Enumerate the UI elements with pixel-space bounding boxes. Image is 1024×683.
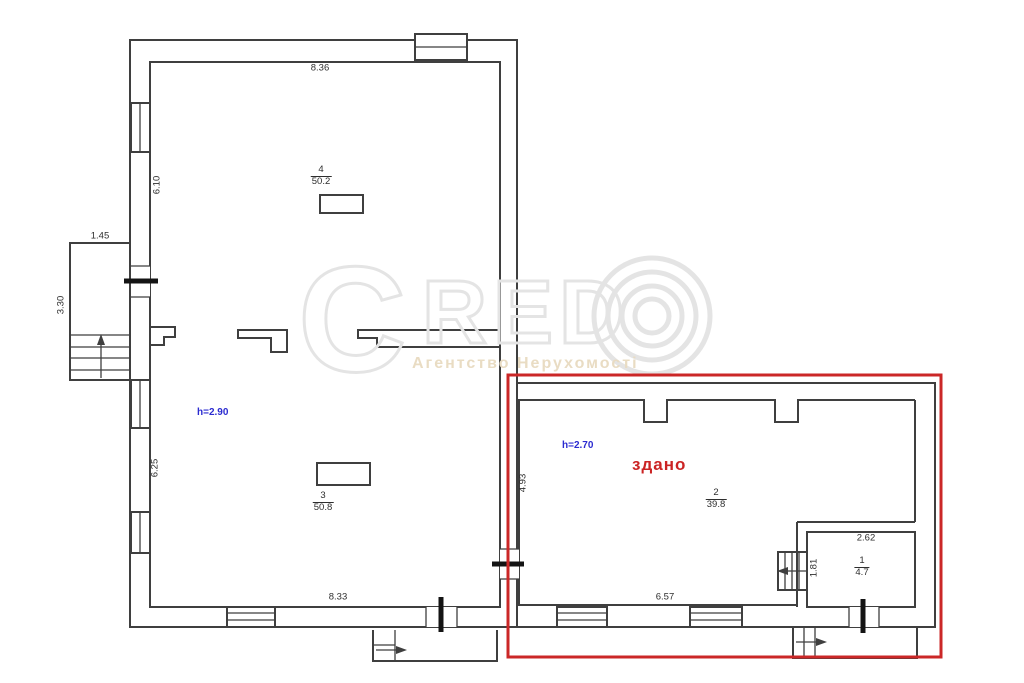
door-bottom-left-building [426, 597, 457, 632]
watermark-text: RED [422, 268, 630, 358]
room3-label: 3 50.8 [313, 491, 334, 514]
watermark-subtitle: Агентство Нерухомості [412, 356, 639, 372]
dim-left-upper-height: 6.10 [152, 176, 163, 195]
window-left-wall-3 [131, 512, 150, 553]
window-top-wall [415, 34, 467, 60]
dim-annex-bottom-width: 6.57 [656, 592, 675, 603]
room2-label: 2 39.8 [706, 488, 727, 511]
window-bottom-left-building [227, 607, 275, 627]
dim-top-width: 8.36 [311, 63, 330, 74]
status-leased-text: здано [632, 455, 686, 475]
dim-stair-width: 1.45 [91, 231, 110, 242]
room4-label: 4 50.2 [311, 165, 332, 188]
window-left-wall-1 [131, 103, 150, 152]
watermark-letter-c: C [298, 244, 406, 394]
room4-area: 50.2 [311, 177, 332, 188]
window-left-wall-2 [131, 380, 150, 428]
porch-stairs-bottom-left [373, 630, 497, 661]
floor-plan-canvas: C RED Агентство Нерухомості [0, 0, 1024, 683]
room2-area: 39.8 [706, 500, 727, 511]
dim-stair-height: 3.30 [56, 296, 67, 315]
window-annex-bottom-1 [557, 607, 607, 627]
room3-area: 50.8 [313, 503, 334, 514]
dim-room1-width: 2.62 [857, 533, 876, 544]
dim-bottom-width-left: 8.33 [329, 592, 348, 603]
room1-label: 1 4.7 [854, 556, 869, 579]
window-annex-bottom-2 [690, 607, 742, 627]
dim-annex-left-height: 4.93 [518, 474, 529, 493]
fixture-room3 [317, 463, 370, 485]
room1-area: 4.7 [854, 568, 869, 579]
height-label-room3: h=2.90 [197, 407, 228, 418]
exterior-staircase-left [70, 243, 130, 380]
interior-stairs-room1 [777, 552, 807, 590]
height-label-room2: h=2.70 [562, 440, 593, 451]
dim-left-lower-height: 6.25 [150, 459, 161, 478]
porch-stairs-room1 [793, 627, 917, 658]
dim-room1-height: 1.81 [809, 559, 820, 578]
fixture-room4 [320, 195, 363, 213]
